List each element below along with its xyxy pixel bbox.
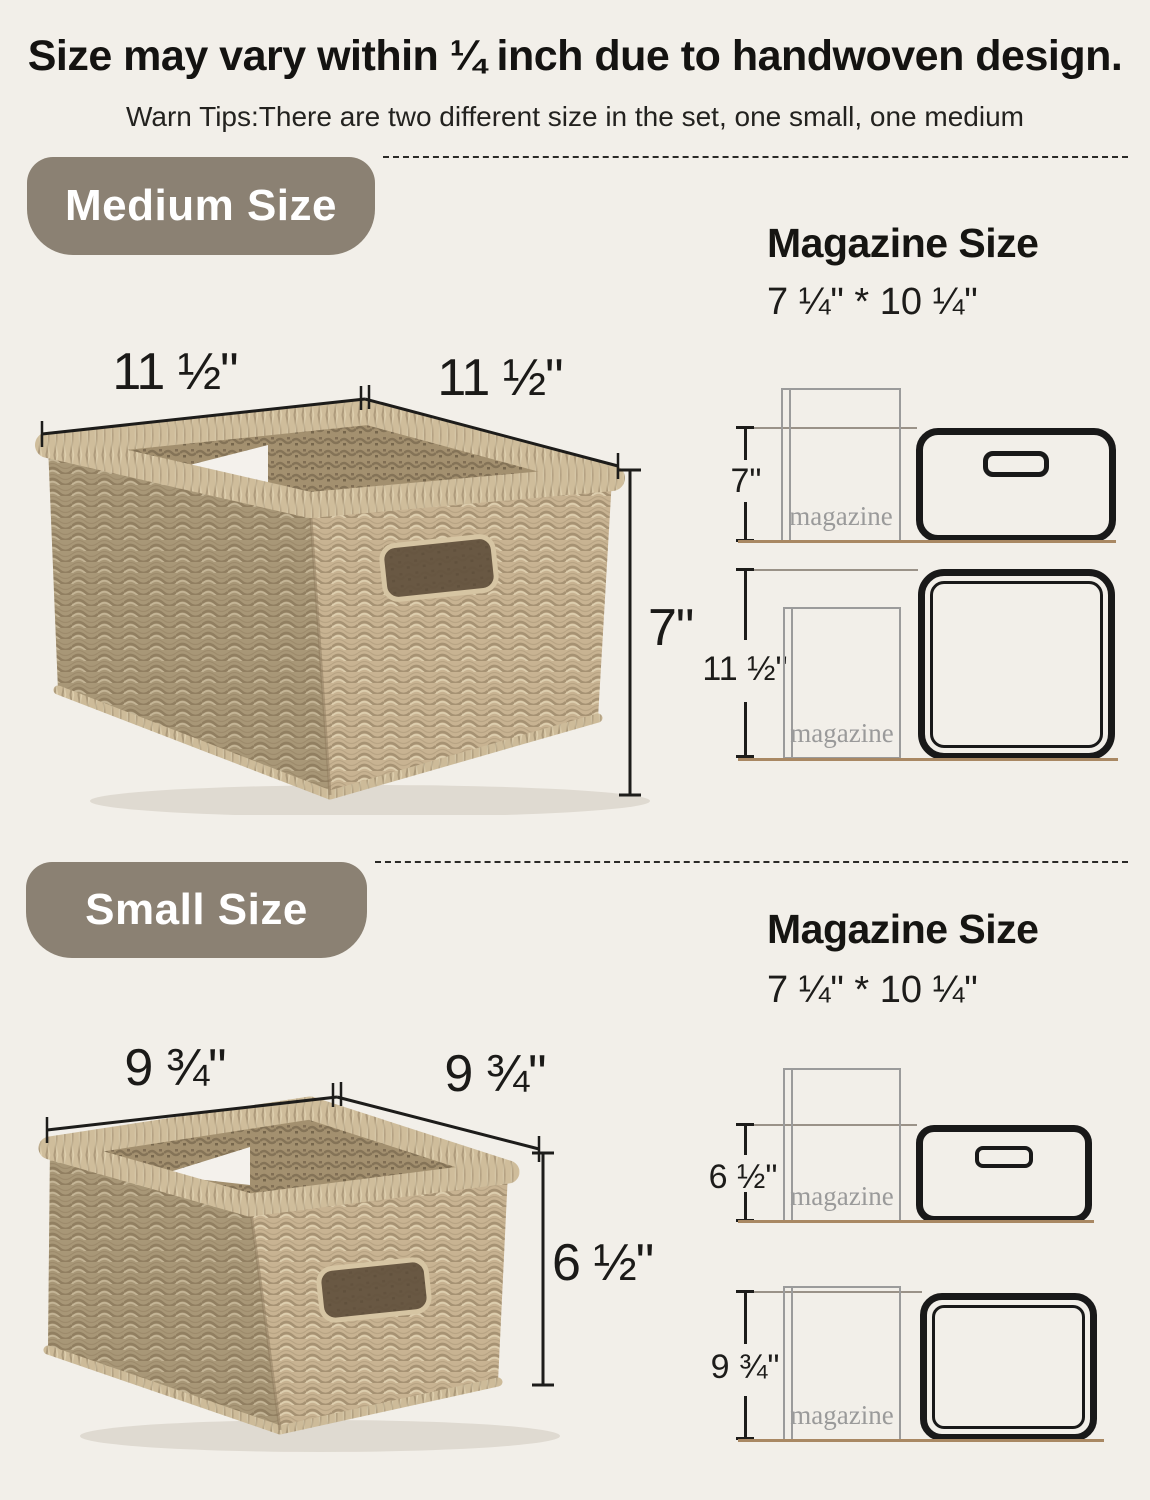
dim-line-small-side-top	[744, 1125, 747, 1155]
magazine-outline-small-side: magazine	[783, 1068, 901, 1222]
basket-side-outline-small	[916, 1125, 1092, 1223]
section-small: Small Size Magazine Size 7 ¼" * 10 ¼"	[0, 0, 1150, 1500]
dim-label-depth-small: 9 ¾"	[415, 1044, 575, 1104]
magazine-size-dims-small: 7 ¼" * 10 ¼"	[767, 969, 978, 1012]
base-line-small-side	[738, 1220, 1094, 1223]
basket-handle-outline	[975, 1146, 1033, 1168]
magazine-outline-small-top: magazine	[783, 1286, 901, 1441]
dim-line-small-top-upper	[744, 1292, 747, 1344]
dim-label-height-small: 6 ½"	[552, 1233, 692, 1293]
size-badge-small-label: Small Size	[85, 885, 308, 935]
base-line-small-top	[738, 1439, 1104, 1442]
basket-illustration-small	[48, 1108, 560, 1452]
dotted-divider-small	[375, 861, 1128, 863]
magazine-size-heading-small: Magazine Size	[767, 906, 1038, 953]
magazine-text: magazine	[785, 1181, 899, 1212]
size-badge-small: Small Size	[26, 862, 367, 958]
dim-label-width-small: 9 ¾"	[95, 1038, 255, 1098]
dim-cap	[736, 1123, 754, 1126]
dim-line-small-top-lower	[744, 1396, 747, 1440]
basket-top-outline-small	[920, 1293, 1097, 1441]
dim-cap	[736, 1290, 754, 1293]
page-root: Size may vary within ¼ inch due to handw…	[0, 0, 1150, 1500]
magazine-text: magazine	[785, 1400, 899, 1431]
basket-top-inner-outline	[932, 1305, 1085, 1429]
